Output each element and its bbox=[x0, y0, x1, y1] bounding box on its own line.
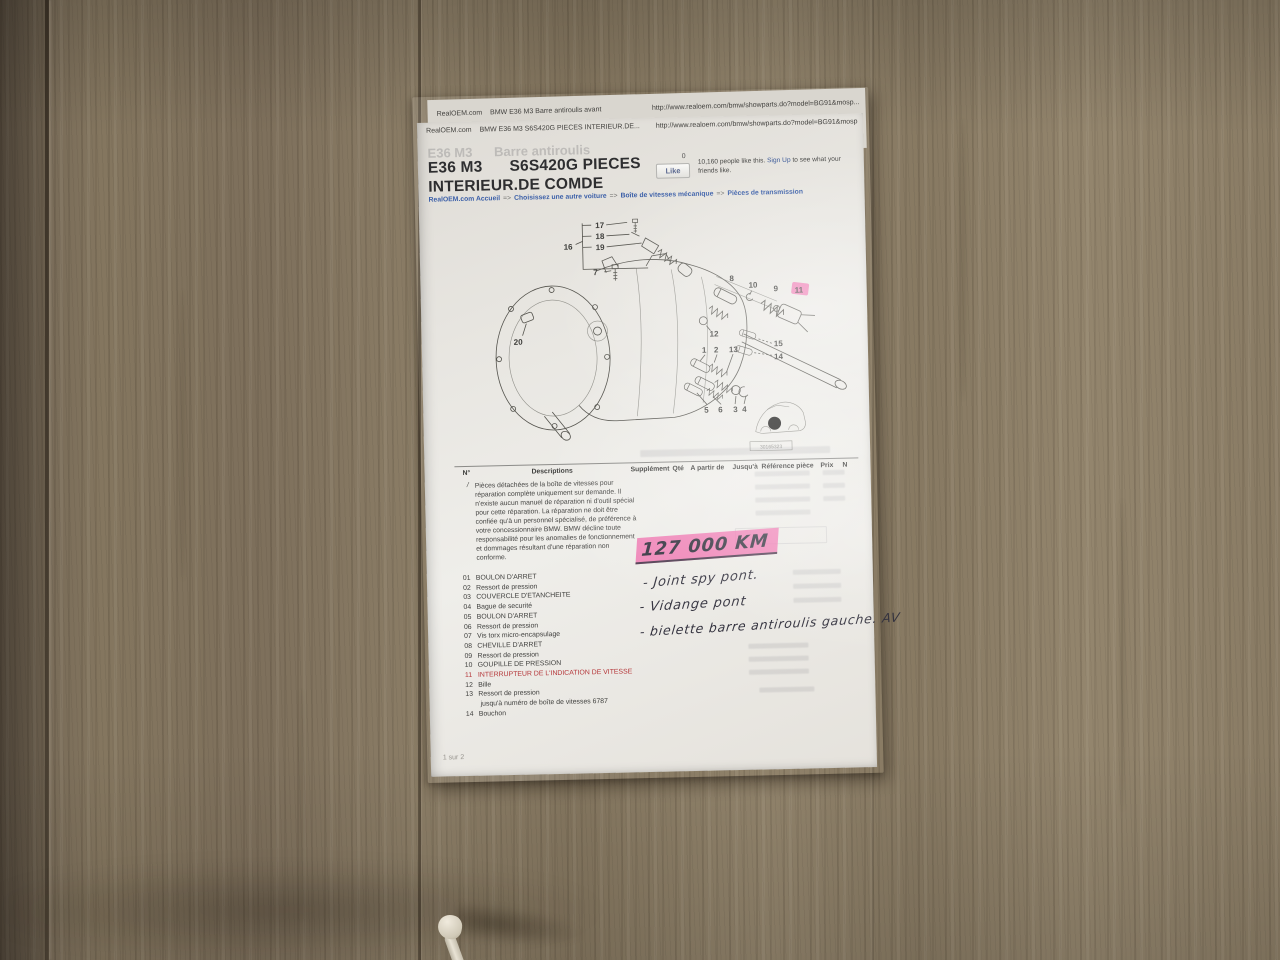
callout-5: 5 bbox=[704, 406, 709, 415]
parts-list: 01BOULON D'ARRET 02Ressort de pression 0… bbox=[463, 569, 696, 720]
facebook-like-button: Like bbox=[656, 163, 690, 179]
back-sheet-doc-title: BMW E36 M3 Barre antiroulis avant bbox=[490, 106, 601, 116]
repair-notice-text: Pièces détachées de la boîte de vitesses… bbox=[475, 478, 642, 563]
wood-grain-streak bbox=[960, 120, 966, 400]
site-name: RealOEM.com bbox=[426, 127, 472, 135]
back-sheet-site: RealOEM.com bbox=[437, 110, 483, 118]
breadcrumb-choose-car-link: Choisissez une autre voiture bbox=[514, 193, 607, 202]
handwritten-mileage: 127 000 KM bbox=[635, 528, 778, 565]
col-descriptions: Descriptions bbox=[531, 468, 572, 476]
callout-1: 1 bbox=[702, 346, 707, 355]
bleed-through-text bbox=[823, 483, 845, 488]
bleed-through-text bbox=[755, 483, 810, 489]
wood-plank-seam bbox=[45, 0, 49, 960]
col-part-ref: Référence pièce bbox=[761, 462, 813, 470]
photo-scene: RealOEM.com BMW E36 M3 Barre antiroulis … bbox=[0, 0, 1280, 960]
callout-14: 14 bbox=[774, 352, 784, 361]
col-n: N bbox=[842, 462, 847, 469]
breadcrumb-separator: => bbox=[500, 195, 514, 202]
breadcrumb-separator: => bbox=[713, 190, 727, 197]
breadcrumb-gearbox-link: Boîte de vitesses mécanique bbox=[620, 190, 713, 199]
sign-up-link: Sign Up bbox=[767, 157, 791, 165]
back-sheet-url: http://www.realoem.com/bmw/showparts.do?… bbox=[652, 99, 860, 112]
callout-11: 11 bbox=[795, 286, 804, 295]
plug-ring-cluster-drawing: 5 6 3 4 bbox=[683, 381, 748, 416]
notice-marker: / bbox=[467, 482, 469, 489]
callout-10: 10 bbox=[748, 281, 758, 290]
wood-left-shadow bbox=[0, 0, 48, 960]
callout-4: 4 bbox=[742, 405, 747, 414]
wood-grain-streak bbox=[1120, 500, 1125, 810]
bleed-through-text bbox=[748, 643, 808, 649]
bleed-through-text bbox=[749, 669, 809, 675]
breadcrumb-transmission-link: Pièces de transmission bbox=[727, 189, 803, 198]
bleed-through-text bbox=[793, 583, 841, 589]
bleed-through-text bbox=[793, 597, 841, 603]
bleed-through-text bbox=[755, 509, 810, 515]
col-qty: Qté bbox=[672, 465, 683, 472]
car-location-icon: 30165323 bbox=[749, 402, 806, 451]
callout-12: 12 bbox=[709, 329, 719, 338]
page-title: E36 M3 S6S420G PIECESINTERIEUR.DE COMDE bbox=[428, 154, 642, 197]
col-num: N° bbox=[463, 470, 471, 477]
page-url: http://www.realoem.com/bmw/showparts.do?… bbox=[656, 118, 858, 129]
callout-18: 18 bbox=[595, 232, 605, 241]
transmission-location-dot bbox=[768, 417, 781, 430]
plug-20-drawing: 20 bbox=[513, 312, 535, 347]
bleed-through-text bbox=[755, 470, 810, 476]
callout-7: 7 bbox=[593, 268, 598, 277]
like-count: 0 bbox=[682, 153, 686, 160]
bleed-through-text bbox=[823, 470, 845, 475]
bleed-through-text bbox=[793, 569, 841, 575]
printed-page: RealOEM.com BMW E36 M3 S6S420G PIECES IN… bbox=[417, 113, 877, 777]
col-price: Prix bbox=[820, 462, 833, 469]
bell-housing-drawing bbox=[495, 285, 612, 444]
detent-group-drawing: 17 18 19 16 7 bbox=[563, 218, 694, 282]
callout-17: 17 bbox=[595, 221, 605, 230]
callout-6: 6 bbox=[718, 405, 723, 414]
callout-8: 8 bbox=[729, 274, 734, 283]
page-number: 1 sur 2 bbox=[443, 754, 465, 761]
callout-15: 15 bbox=[774, 339, 784, 348]
callout-20: 20 bbox=[514, 338, 524, 347]
bleed-through-text bbox=[755, 496, 810, 502]
document-title-header: BMW E36 M3 S6S420G PIECES INTERIEUR.DE..… bbox=[480, 123, 640, 133]
callout-9: 9 bbox=[774, 284, 779, 293]
gearbox-exploded-diagram: 17 18 19 16 7 20 bbox=[445, 203, 863, 469]
callout-3: 3 bbox=[733, 405, 738, 414]
bleed-through-text bbox=[759, 686, 814, 692]
wood-grain-streak bbox=[180, 290, 185, 580]
callout-19: 19 bbox=[596, 243, 606, 252]
breadcrumb-separator: => bbox=[607, 193, 621, 200]
print-header: RealOEM.com BMW E36 M3 S6S420G PIECES IN… bbox=[417, 118, 863, 135]
col-supplement: Supplément bbox=[630, 466, 669, 474]
callout-2: 2 bbox=[714, 345, 719, 354]
callout-13: 13 bbox=[729, 345, 739, 354]
bleed-through-text bbox=[823, 496, 845, 501]
breadcrumb-home-link: RealOEM.com Accueil bbox=[429, 195, 501, 204]
bleed-through-text bbox=[749, 656, 809, 662]
facebook-social-text: 10,160 people like this. Sign Up to see … bbox=[698, 156, 844, 176]
col-from: A partir de bbox=[690, 464, 724, 472]
col-until: Jusqu'à bbox=[732, 464, 758, 472]
callout-16: 16 bbox=[564, 243, 574, 252]
